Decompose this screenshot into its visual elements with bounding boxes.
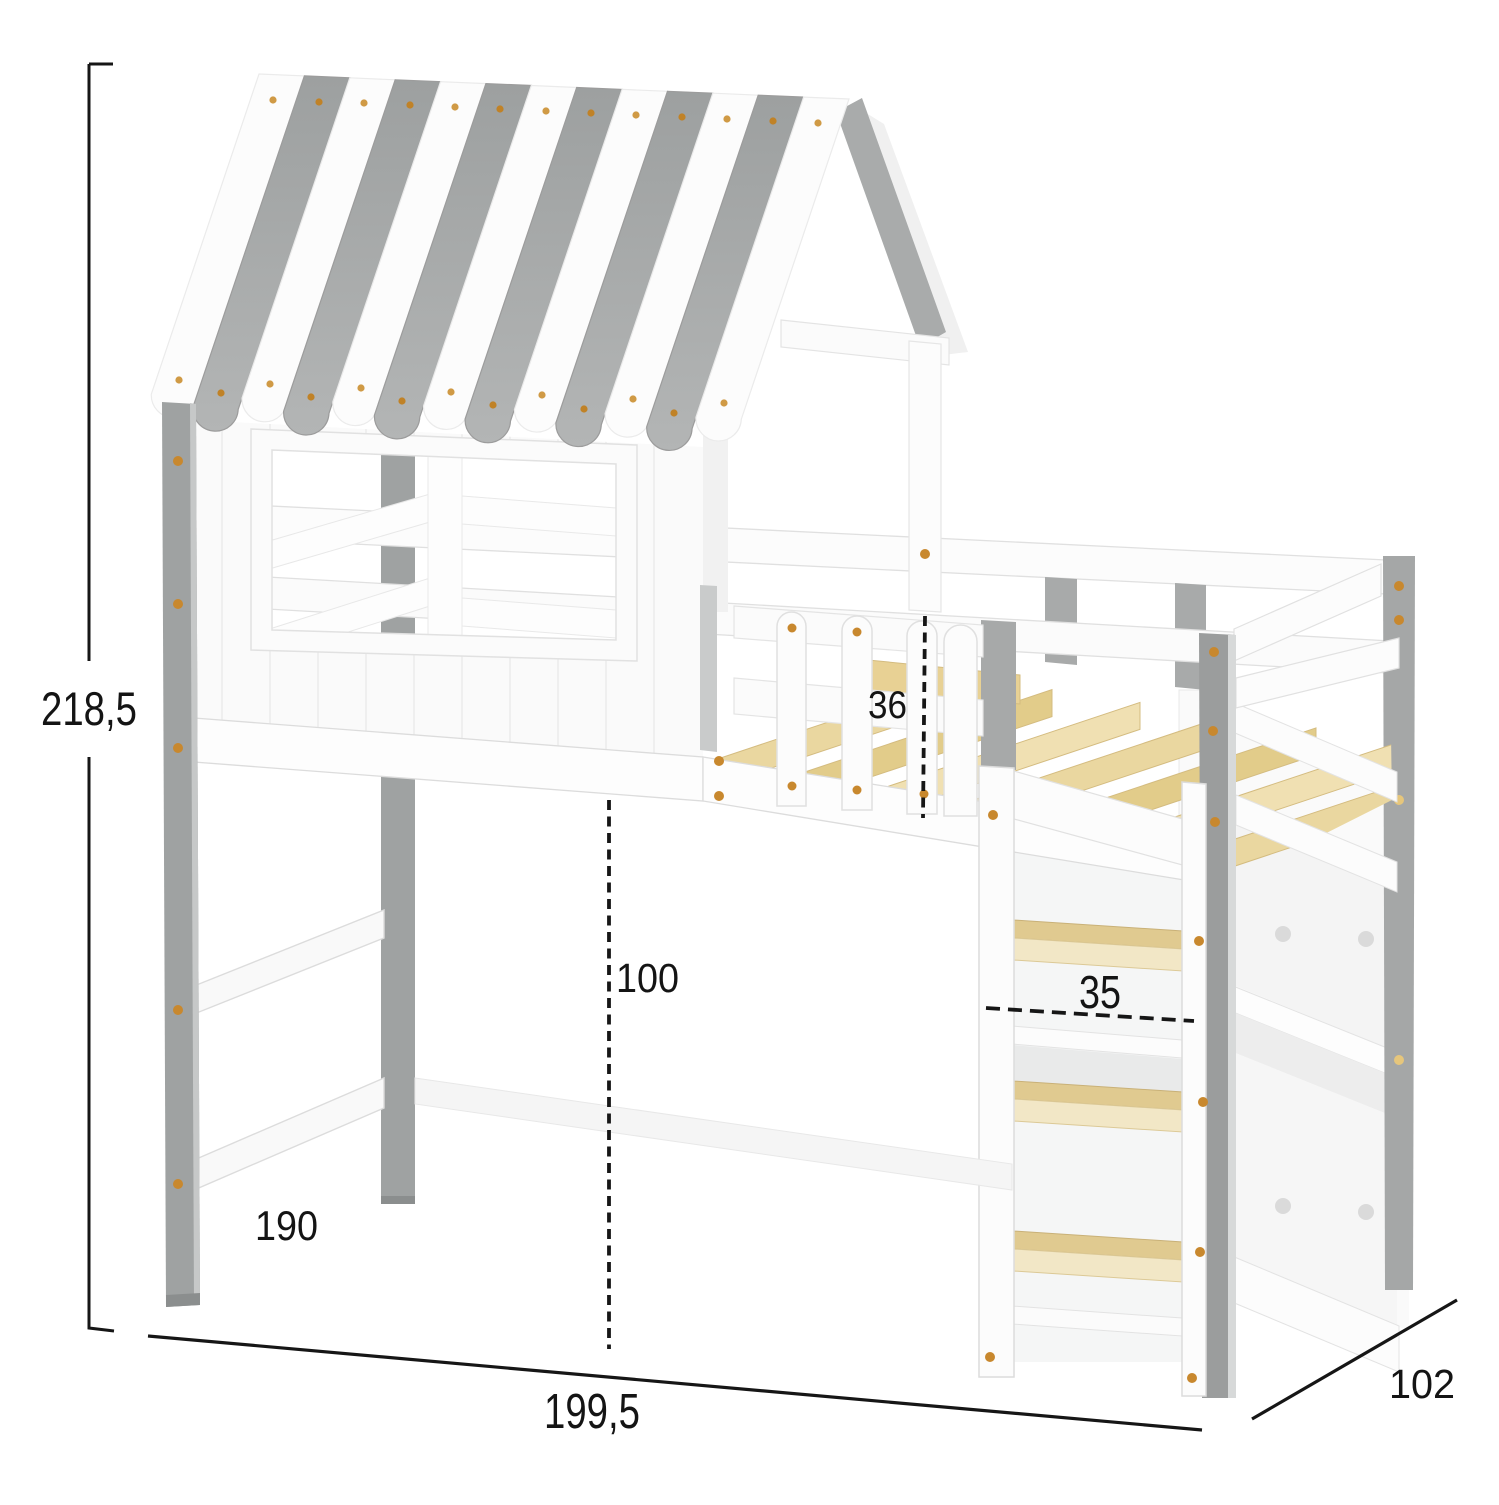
svg-text:102: 102	[1389, 1361, 1455, 1407]
svg-text:100: 100	[616, 955, 679, 1001]
svg-text:35: 35	[1079, 966, 1121, 1018]
svg-text:218,5: 218,5	[41, 682, 137, 735]
svg-text:190: 190	[255, 1202, 318, 1249]
svg-text:199,5: 199,5	[544, 1385, 640, 1439]
svg-text:36: 36	[868, 684, 907, 727]
